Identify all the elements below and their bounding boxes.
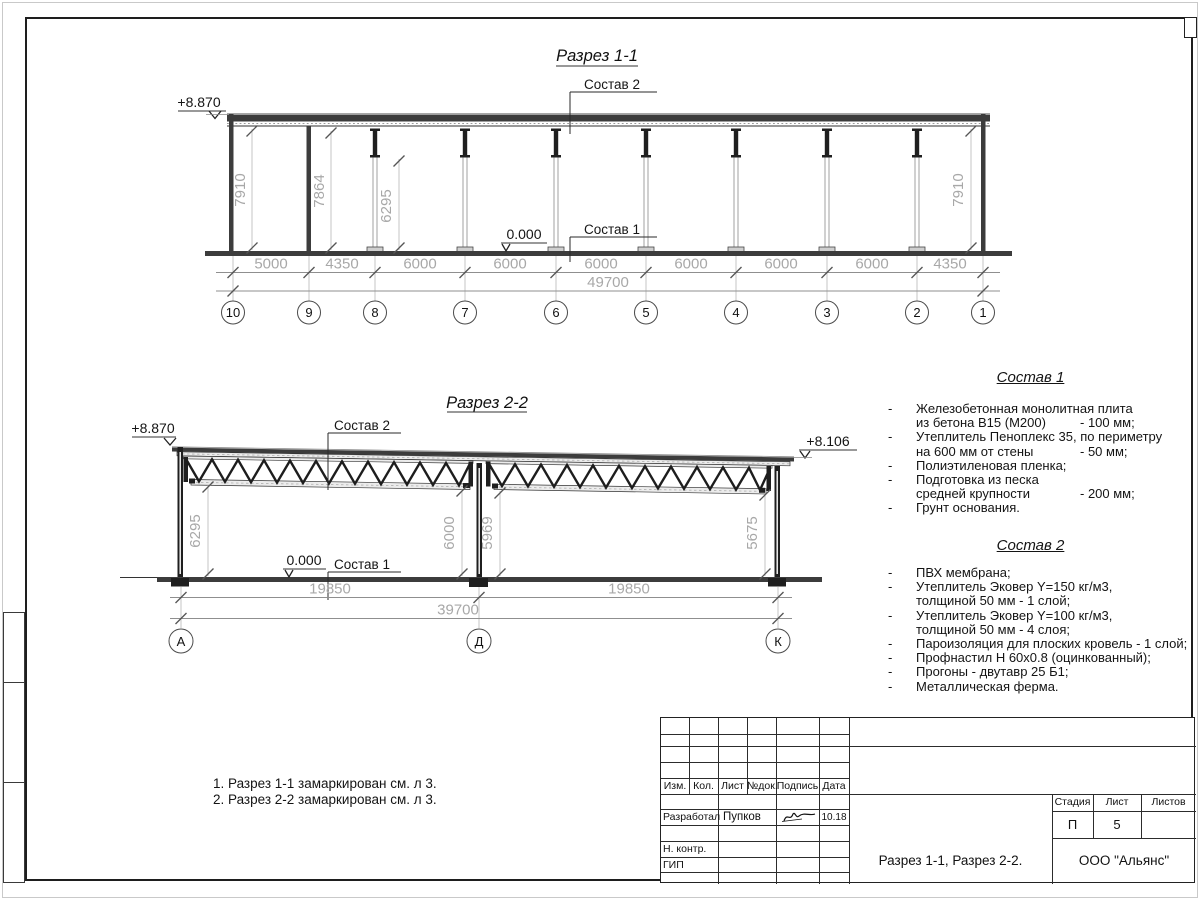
svg-text:1: 1: [979, 305, 986, 320]
tb-doc-title: Разрез 1-1, Разрез 2-2.: [849, 853, 1052, 868]
axis-marker: Д: [467, 629, 491, 653]
svg-text:7910: 7910: [950, 173, 967, 206]
svg-text:19850: 19850: [608, 581, 650, 598]
list-item: -Профнастил Н 60х0.8 (оцинкованный);: [878, 651, 1198, 665]
section1-elev-top-value: +8.870: [177, 94, 220, 110]
list-item: -Полиэтиленовая пленка;: [878, 459, 1198, 473]
list-item: -Железобетонная монолитная плита: [878, 402, 1198, 416]
svg-text:4: 4: [732, 305, 739, 320]
sostav1-heading: Состав 1: [878, 369, 1183, 386]
svg-text:5000: 5000: [254, 256, 287, 273]
section1-roof: [227, 114, 990, 127]
section1-title: Разрез 1-1: [556, 47, 638, 65]
svg-text:А: А: [177, 634, 186, 649]
section2-axis-markers: А Д К: [169, 629, 790, 653]
svg-text:6295: 6295: [187, 514, 204, 547]
tb-gip-label: ГИП: [663, 859, 684, 871]
svg-text:49700: 49700: [587, 274, 629, 291]
section-2-2-drawing: Разрез 2-2: [120, 394, 857, 653]
tb-sheet-label: Лист: [1093, 796, 1141, 808]
note-line: 2. Разрез 2-2 замаркирован см. л 3.: [213, 792, 437, 808]
svg-text:6000: 6000: [764, 256, 797, 273]
list-item: -Грунт основания.: [878, 501, 1198, 515]
axis-marker: 2: [906, 301, 929, 324]
axis-marker: 10: [222, 301, 245, 324]
section2-elev-zero-value: 0.000: [286, 552, 321, 568]
section1-elevation-top: +8.870: [177, 94, 229, 119]
tb-org-name: ООО "Альянс": [1052, 853, 1196, 868]
signature-mark: [780, 810, 817, 824]
tb-stage-label: Стадия: [1052, 796, 1093, 808]
svg-text:Состав 2: Состав 2: [334, 418, 390, 433]
tb-developed-label: Разработал: [663, 811, 720, 823]
svg-text:39700: 39700: [437, 602, 479, 619]
list-item: на 600 мм от стены- 50 мм;: [878, 445, 1198, 459]
list-item: толщиной 50 мм - 4 слоя;: [878, 623, 1198, 637]
svg-text:19850: 19850: [309, 581, 351, 598]
section2-truss-right: [486, 461, 772, 494]
tb-sheet-number: 5: [1093, 817, 1141, 832]
axis-marker: 1: [972, 301, 995, 324]
tb-header-date: Дата: [819, 780, 849, 792]
section2-elevation-left: +8.870: [131, 420, 176, 445]
svg-text:10: 10: [226, 305, 240, 320]
section2-ground: [120, 577, 822, 587]
tb-ncontr-label: Н. контр.: [663, 843, 706, 855]
svg-text:6000: 6000: [441, 516, 458, 549]
tb-developed-name: Пупков: [723, 811, 761, 823]
svg-text:8: 8: [371, 305, 378, 320]
list-item: толщиной 50 мм - 1 слой;: [878, 594, 1198, 608]
svg-text:5675: 5675: [744, 516, 761, 549]
tb-header-izm: Изм.: [661, 780, 689, 792]
section1-bottom-dims: 5000 4350 6000 6000 6000 6000 6000 6000 …: [216, 256, 1000, 302]
svg-text:Состав 1: Состав 1: [584, 222, 640, 237]
axis-marker: 7: [454, 301, 477, 324]
section-1-1-drawing: Разрез 1-1: [177, 47, 1012, 324]
axis-marker: 4: [725, 301, 748, 324]
axis-marker: 8: [364, 301, 387, 324]
list-item: средней крупности- 200 мм;: [878, 487, 1198, 501]
notes: 1. Разрез 1-1 замаркирован см. л 3. 2. Р…: [213, 776, 437, 807]
axis-marker: 5: [635, 301, 658, 324]
tb-header-kol: Кол.: [689, 780, 718, 792]
section2-bottom-dims: 19850 19850 39700: [170, 581, 792, 629]
tb-stage-value: П: [1052, 817, 1093, 832]
axis-marker: 3: [816, 301, 839, 324]
section2-elevation-right: +8.106: [794, 433, 857, 458]
axis-marker: 9: [298, 301, 321, 324]
axis-marker: 6: [545, 301, 568, 324]
svg-text:6000: 6000: [403, 256, 436, 273]
sostav2-list: Состав 2 -ПВХ мембрана; -Утеплитель Эков…: [878, 537, 1198, 694]
sostav1-list: Состав 1 -Железобетонная монолитная плит…: [878, 369, 1198, 516]
svg-text:2: 2: [913, 305, 920, 320]
list-item: из бетона В15 (М200)- 100 мм;: [878, 416, 1198, 430]
list-item: -Подготовка из песка: [878, 473, 1198, 487]
svg-text:9: 9: [305, 305, 312, 320]
svg-text:7: 7: [461, 305, 468, 320]
svg-text:5: 5: [642, 305, 649, 320]
section2-elev-right-value: +8.106: [806, 433, 849, 449]
list-item: -Утеплитель Пеноплекс 35, по периметру: [878, 430, 1198, 444]
svg-text:6: 6: [552, 305, 559, 320]
list-item: -Прогоны - двутавр 25 Б1;: [878, 665, 1198, 679]
svg-text:4350: 4350: [325, 256, 358, 273]
section2-elev-left-value: +8.870: [131, 420, 174, 436]
svg-text:3: 3: [823, 305, 830, 320]
list-item: -ПВХ мембрана;: [878, 566, 1198, 580]
svg-text:4350: 4350: [933, 256, 966, 273]
axis-marker: А: [169, 629, 193, 653]
svg-text:6000: 6000: [855, 256, 888, 273]
tb-header-list: Лист: [718, 780, 747, 792]
section1-elev-zero-value: 0.000: [506, 226, 541, 242]
section1-axis-markers: 10 9 8 7 6 5 4 3 2 1: [222, 301, 995, 324]
section1-elevation-zero: 0.000: [501, 226, 547, 251]
svg-text:К: К: [774, 634, 782, 649]
section2-elevation-zero: 0.000: [283, 552, 326, 577]
tb-header-sign: Подпись: [776, 780, 819, 792]
list-item: -Пароизоляция для плоских кровель - 1 сл…: [878, 637, 1198, 651]
list-item: -Утеплитель Эковер Y=100 кг/м3,: [878, 609, 1198, 623]
sostav2-heading: Состав 2: [878, 537, 1183, 554]
svg-text:7864: 7864: [311, 174, 328, 207]
svg-text:6000: 6000: [493, 256, 526, 273]
section1-columns: [367, 129, 925, 256]
svg-text:Д: Д: [475, 634, 484, 649]
svg-text:5969: 5969: [479, 516, 496, 549]
drawing-sheet: Разрез 1-1: [0, 0, 1200, 900]
svg-text:Состав 2: Состав 2: [584, 77, 640, 92]
svg-text:6000: 6000: [584, 256, 617, 273]
note-line: 1. Разрез 1-1 замаркирован см. л 3.: [213, 776, 437, 792]
tb-developed-date: 10.18: [819, 812, 849, 823]
svg-text:6000: 6000: [674, 256, 707, 273]
tb-header-doc: №док.: [747, 780, 776, 792]
svg-text:Состав 1: Состав 1: [334, 557, 390, 572]
list-item: -Утеплитель Эковер Y=150 кг/м3,: [878, 580, 1198, 594]
axis-marker: К: [766, 629, 790, 653]
title-block: Изм. Кол. Лист №док. Подпись Дата Разраб…: [660, 717, 1195, 883]
section2-title: Разрез 2-2: [446, 394, 528, 412]
svg-text:6295: 6295: [378, 189, 395, 222]
svg-text:7910: 7910: [232, 173, 249, 206]
tb-sheets-label: Листов: [1141, 796, 1196, 808]
list-item: -Металлическая ферма.: [878, 680, 1198, 694]
